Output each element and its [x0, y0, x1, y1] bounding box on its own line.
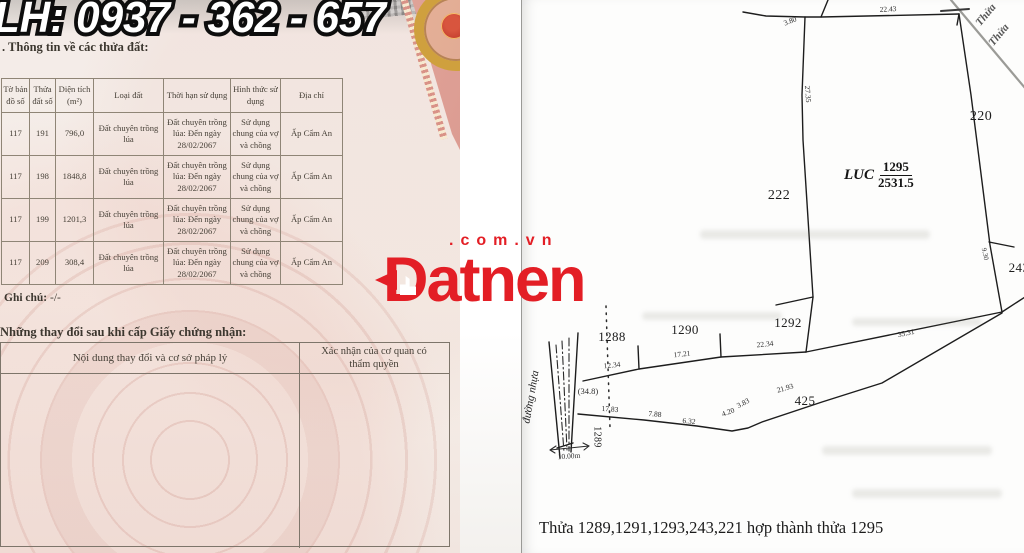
table-cell: Đất chuyên trồng lúa: Đến ngày 28/02/206…	[164, 199, 231, 242]
parcel-table-head: Tờ bản đồ sốThửa đất sốDiện tích (m²)Loạ…	[2, 79, 343, 113]
map-label-17.21: 17.21	[673, 349, 691, 360]
table-cell: 1848,8	[56, 156, 94, 199]
table-cell: 117	[2, 113, 30, 156]
map-caption: Thửa 1289,1291,1293,243,221 hợp thành th…	[539, 518, 883, 538]
col-header: Thời hạn sử dụng	[164, 79, 231, 113]
table-cell: Ấp Cẩm An	[281, 199, 343, 242]
parcel-table-body: 117191796,0Đất chuyên trồng lúaĐất chuyê…	[2, 113, 343, 285]
table-cell: Đất chuyên trồng lúa	[94, 113, 164, 156]
col-header: Thửa đất số	[30, 79, 56, 113]
table-cell: Đất chuyên trồng lúa	[94, 242, 164, 285]
parcel-info-table: Tờ bản đồ sốThửa đất sốDiện tích (m²)Loạ…	[1, 78, 343, 285]
col-header: Tờ bản đồ số	[2, 79, 30, 113]
map-label-1292: 1292	[774, 315, 802, 331]
map-label-6.32: 6.32	[682, 416, 696, 426]
map-label-22.43: 22.43	[879, 4, 896, 14]
table-cell: 796,0	[56, 113, 94, 156]
table-cell: Đất chuyên trồng lúa: Đến ngày 28/02/206…	[164, 242, 231, 285]
table-cell: Đất chuyên trồng lúa	[94, 199, 164, 242]
col-header: Hình thức sử dụng	[231, 79, 281, 113]
table-cell: Sử dụng chung của vợ và chồng	[231, 113, 281, 156]
table-cell: Đất chuyên trồng lúa	[94, 156, 164, 199]
showthrough-smudge	[700, 230, 930, 239]
col-header: Địa chỉ	[281, 79, 343, 113]
luc-numerator: 1295	[880, 160, 912, 176]
showthrough-smudge	[852, 489, 1002, 498]
table-cell: 117	[2, 242, 30, 285]
table-cell: Ấp Cẩm An	[281, 242, 343, 285]
table-row: 117209308,4Đất chuyên trồng lúaĐất chuyê…	[2, 242, 343, 285]
gold-emblem-center-icon	[441, 13, 460, 39]
logo-wordmark: Datnen	[383, 244, 585, 316]
map-label-1290: 1290	[671, 322, 699, 338]
table-cell: Ấp Cẩm An	[281, 156, 343, 199]
map-label-425: 425	[795, 393, 816, 409]
table-cell: Ấp Cẩm An	[281, 113, 343, 156]
changes-col2-header: Xác nhận của cơ quan có thẩm quyền	[299, 343, 449, 373]
note-value: -/-	[47, 292, 61, 304]
showthrough-smudge	[642, 312, 782, 320]
changes-section-title: Những thay đổi sau khi cấp Giấy chứng nh…	[0, 325, 246, 340]
table-cell: 117	[2, 199, 30, 242]
parcel-luc-label: LUC 1295 2531.5	[844, 160, 914, 191]
table-cell: 209	[30, 242, 56, 285]
changes-table-header: Nội dung thay đổi và cơ sở pháp lý Xác n…	[1, 343, 449, 374]
map-label-222: 222	[768, 188, 790, 204]
luc-prefix: LUC	[844, 167, 874, 184]
table-cell: 191	[30, 113, 56, 156]
table-cell: 117	[2, 156, 30, 199]
map-label-243: 243	[1009, 260, 1024, 276]
section-title: . Thông tin về các thửa đất:	[2, 40, 149, 55]
note-line: Ghi chú: -/-	[4, 292, 61, 304]
datnen-watermark-logo: .com.vn Datnen	[383, 230, 649, 326]
map-label-1289: 1289	[592, 426, 603, 448]
luc-denominator: 2531.5	[878, 176, 914, 191]
showthrough-smudge	[852, 318, 982, 326]
luc-fraction: 1295 2531.5	[878, 160, 914, 191]
map-label-12.34: 12.34	[603, 360, 621, 371]
map-label-7.88: 7.88	[648, 409, 662, 419]
table-cell: Sử dụng chung của vợ và chồng	[231, 156, 281, 199]
screenshot-root: LH: 0937 - 362 - 657 . Thông tin về các …	[0, 0, 1024, 553]
map-label-10.00m: 10.00m	[557, 451, 580, 462]
phone-number-text: LH: 0937 - 362 - 657	[0, 0, 388, 42]
table-row: 1171991201,3Đất chuyên trồng lúaĐất chuy…	[2, 199, 343, 242]
changes-table: Nội dung thay đổi và cơ sở pháp lý Xác n…	[0, 342, 450, 547]
table-cell: Sử dụng chung của vợ và chồng	[231, 199, 281, 242]
table-row: 1171981848,8Đất chuyên trồng lúaĐất chuy…	[2, 156, 343, 199]
table-cell: 199	[30, 199, 56, 242]
changes-table-divider	[299, 343, 300, 548]
map-label-220: 220	[970, 109, 992, 125]
map-label-17.83: 17.83	[601, 404, 618, 414]
table-cell: Sử dụng chung của vợ và chồng	[231, 242, 281, 285]
map-label-22.34: 22.34	[756, 339, 774, 350]
map-label-1288: 1288	[598, 329, 626, 345]
showthrough-smudge	[822, 446, 992, 455]
note-label: Ghi chú:	[4, 292, 47, 304]
table-cell: 198	[30, 156, 56, 199]
table-row: 117191796,0Đất chuyên trồng lúaĐất chuyê…	[2, 113, 343, 156]
table-cell: 308,4	[56, 242, 94, 285]
map-label-27.35: 27.35	[803, 85, 813, 102]
table-cell: 1201,3	[56, 199, 94, 242]
col-header: Loại đất	[94, 79, 164, 113]
table-cell: Đất chuyên trồng lúa: Đến ngày 28/02/206…	[164, 156, 231, 199]
col-header: Diện tích (m²)	[56, 79, 94, 113]
table-cell: Đất chuyên trồng lúa: Đến ngày 28/02/206…	[164, 113, 231, 156]
map-label-34.8: (34.8)	[578, 386, 599, 396]
changes-col1-header: Nội dung thay đổi và cơ sở pháp lý	[1, 343, 299, 373]
